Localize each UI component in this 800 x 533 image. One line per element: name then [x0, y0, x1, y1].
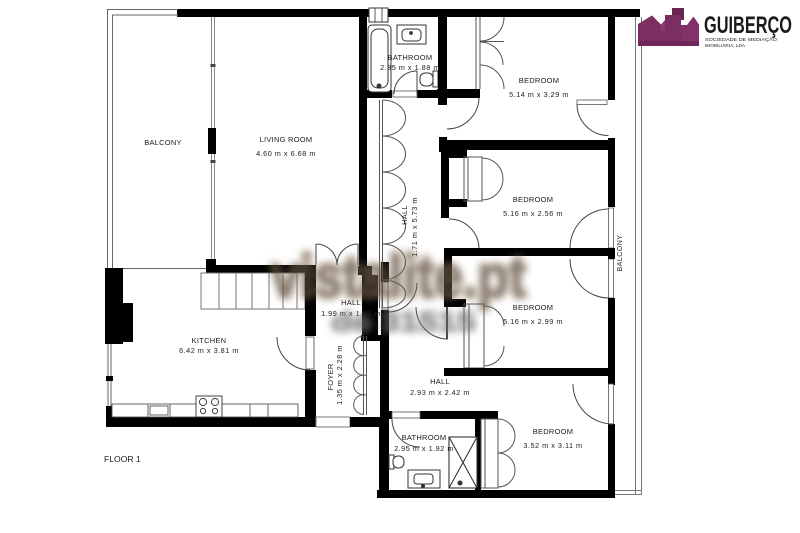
svg-text:2.95 m x 1.92 m: 2.95 m x 1.92 m — [394, 444, 454, 453]
svg-text:IMOBILIÁRIA, LDA: IMOBILIÁRIA, LDA — [705, 42, 746, 48]
svg-text:BALCONY: BALCONY — [144, 138, 182, 147]
svg-text:HALL: HALL — [430, 377, 450, 386]
svg-text:2.35 m x 1.88 m: 2.35 m x 1.88 m — [380, 63, 440, 72]
svg-text:BATHROOM: BATHROOM — [388, 53, 433, 62]
svg-text:BEDROOM: BEDROOM — [519, 76, 560, 85]
svg-text:2.93 m x 2.42 m: 2.93 m x 2.42 m — [410, 388, 470, 397]
svg-text:KITCHEN: KITCHEN — [192, 336, 227, 345]
svg-text:5.16 m x 2.99 m: 5.16 m x 2.99 m — [503, 317, 563, 326]
svg-text:de 31515: de 31515 — [331, 306, 476, 337]
svg-text:5.14 m x 3.29 m: 5.14 m x 3.29 m — [509, 90, 569, 99]
svg-text:vistalite.pt: vistalite.pt — [271, 243, 526, 310]
svg-text:1.35 m x 2.28 m: 1.35 m x 2.28 m — [335, 345, 344, 405]
svg-text:5.16 m x 2.56 m: 5.16 m x 2.56 m — [503, 209, 563, 218]
svg-text:LIVING ROOM: LIVING ROOM — [260, 135, 313, 144]
svg-text:SOCIEDADE DE MEDIAÇÃO: SOCIEDADE DE MEDIAÇÃO — [705, 36, 778, 42]
svg-text:FOYER: FOYER — [326, 363, 335, 390]
svg-text:HALL: HALL — [400, 205, 409, 225]
svg-text:BEDROOM: BEDROOM — [513, 195, 554, 204]
svg-text:GUIBERÇO: GUIBERÇO — [704, 12, 792, 39]
svg-text:6.42 m x 3.81 m: 6.42 m x 3.81 m — [179, 346, 239, 355]
svg-text:FLOOR 1: FLOOR 1 — [104, 454, 141, 464]
svg-text:3.52 m x 3.11 m: 3.52 m x 3.11 m — [523, 441, 582, 450]
svg-text:4.60 m x 6.68 m: 4.60 m x 6.68 m — [256, 149, 316, 158]
svg-text:BEDROOM: BEDROOM — [533, 427, 574, 436]
svg-text:BATHROOM: BATHROOM — [402, 433, 447, 442]
svg-text:BALCONY: BALCONY — [617, 235, 624, 272]
